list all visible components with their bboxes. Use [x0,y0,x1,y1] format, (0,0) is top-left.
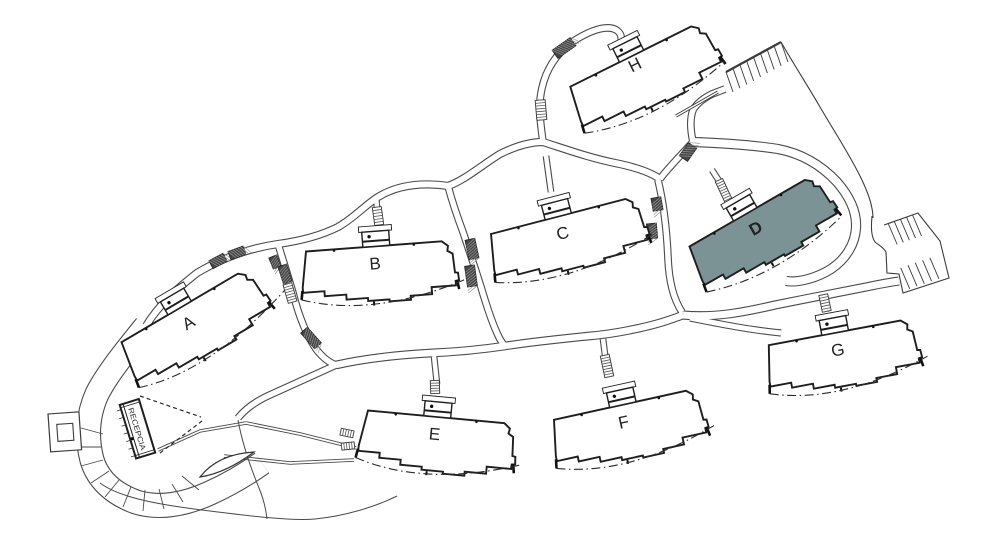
svg-text:B: B [369,254,382,274]
svg-text:E: E [428,424,441,444]
